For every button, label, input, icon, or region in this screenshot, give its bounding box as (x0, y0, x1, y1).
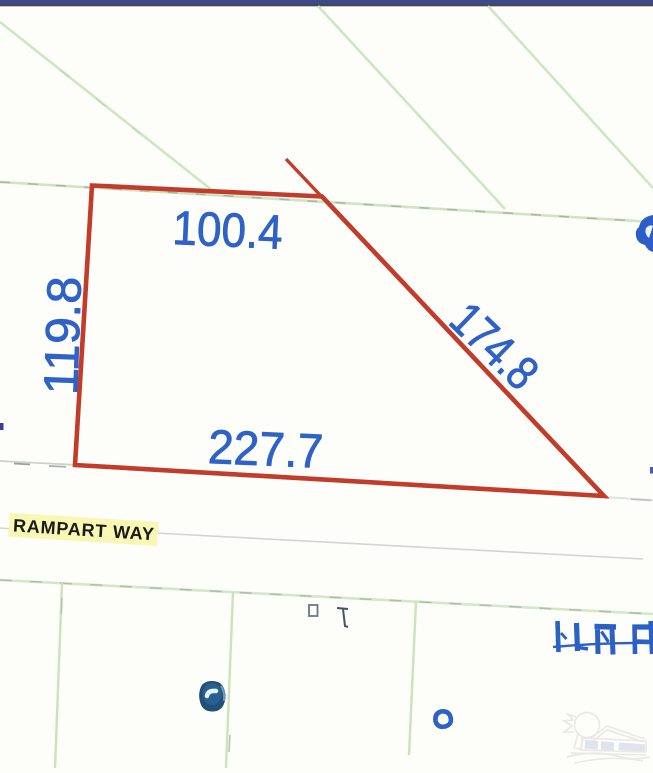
svg-text:119.8: 119.8 (35, 276, 92, 396)
svg-text:227.7: 227.7 (207, 421, 324, 479)
svg-text:100.4: 100.4 (172, 202, 284, 260)
